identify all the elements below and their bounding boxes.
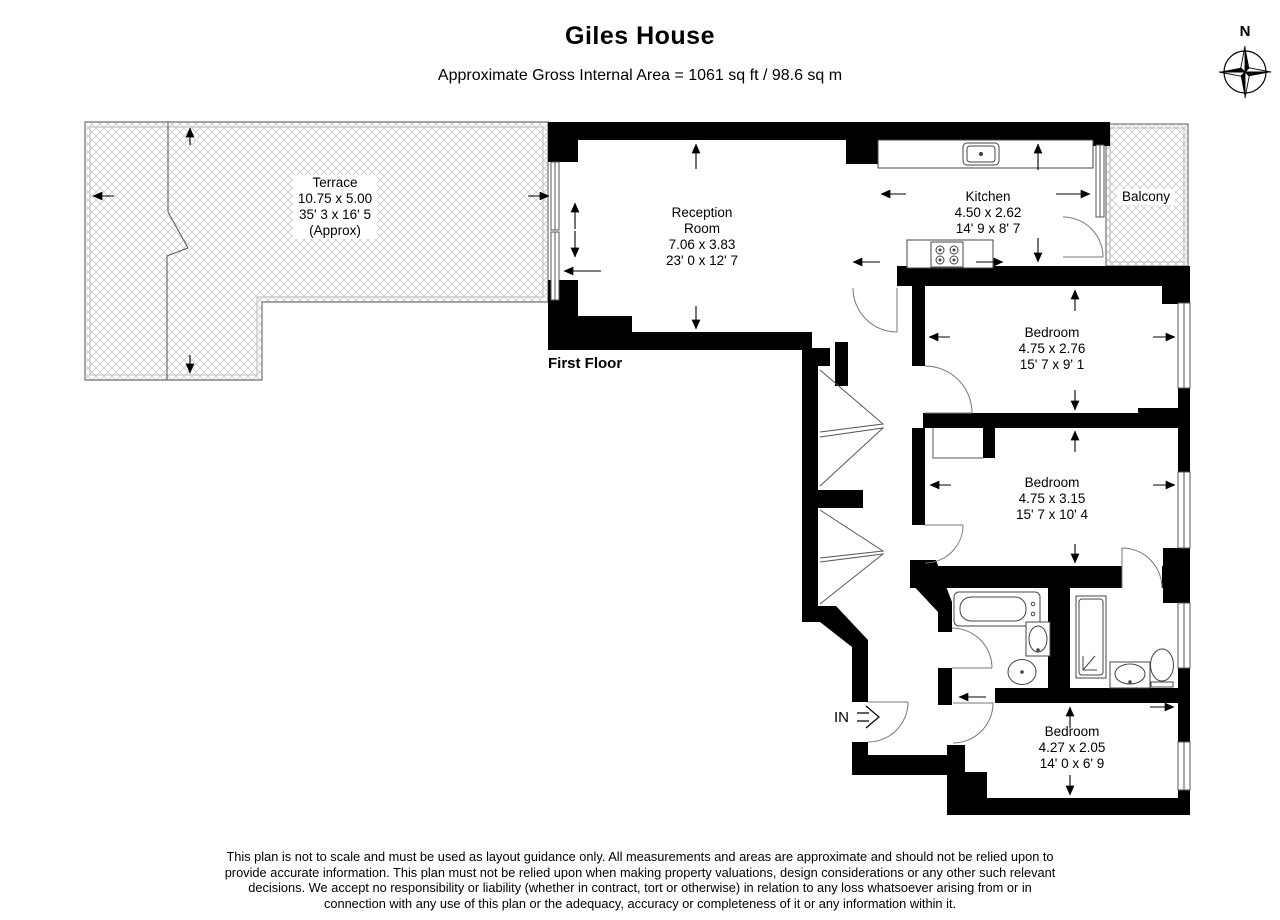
compass-icon [1219,46,1271,98]
entrance-label: IN [834,709,849,726]
shower-room-fixtures [1076,596,1174,688]
terrace-area [85,122,548,380]
disclaimer-line: decisions. We accept no responsibility o… [0,880,1280,896]
room-label-kitchen: Kitchen 4.50 x 2.62 14' 9 x 8' 7 [955,189,1022,237]
disclaimer-line: This plan is not to scale and must be us… [0,849,1280,865]
room-label-bedroom-1: Bedroom 4.75 x 2.76 15' 7 x 9' 1 [1019,325,1086,373]
toilet-icon [1151,649,1174,681]
walls [548,122,1190,815]
entrance-arrow-icon [857,706,879,728]
bathroom-fixtures [954,592,1050,685]
room-label-terrace: Terrace 10.75 x 5.00 35' 3 x 16' 5 (Appr… [293,175,377,239]
wardrobe [933,428,983,458]
room-label-reception: Reception Room 7.06 x 3.83 23' 0 x 12' 7 [666,205,738,269]
hob-icon [931,242,963,267]
room-label-balcony: Balcony [1117,189,1175,205]
floor-label: First Floor [548,355,622,372]
disclaimer-line: provide accurate information. This plan … [0,865,1280,881]
disclaimer: This plan is not to scale and must be us… [0,849,1280,911]
floorplan-page: Giles House Approximate Gross Internal A… [0,0,1280,920]
room-label-bedroom-3: Bedroom 4.27 x 2.05 14' 0 x 6' 9 [1039,724,1106,772]
cupboard-doors [820,370,883,604]
disclaimer-line: connection with any use of this plan or … [0,896,1280,912]
room-label-bedroom-2: Bedroom 4.75 x 3.15 15' 7 x 10' 4 [1016,475,1088,523]
floorplan-drawing [0,0,1280,920]
